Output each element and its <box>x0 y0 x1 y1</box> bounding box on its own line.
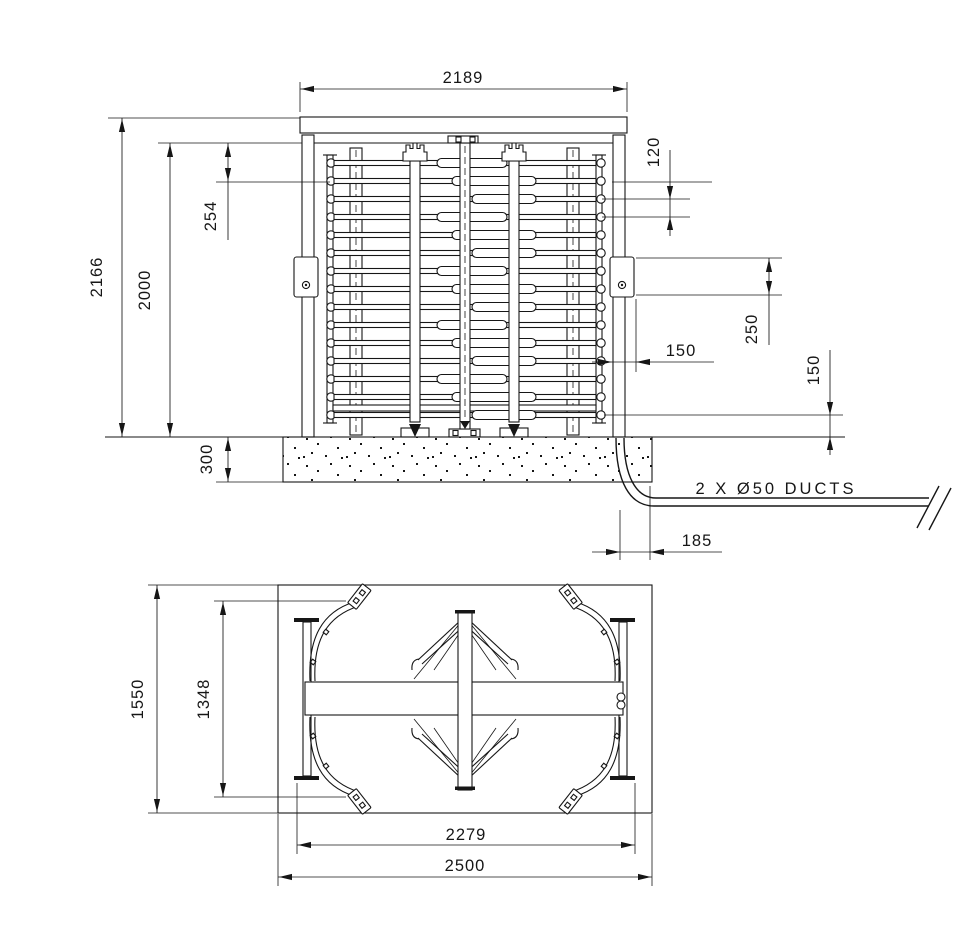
beam-bolt <box>617 693 625 701</box>
dim-reader-box-height-label: 250 <box>743 314 761 345</box>
plan-center-column <box>455 610 475 790</box>
turnstile-technical-drawing-page: 2189 2166 2000 254 300 120 250 150 150 1… <box>0 0 978 941</box>
dim-top-offset-label: 254 <box>202 201 220 232</box>
dim-bottom-bar-height-label: 150 <box>805 355 823 386</box>
dim-overall-height-label: 2166 <box>88 257 106 298</box>
foundation <box>283 437 652 482</box>
pipe-break-mark <box>929 488 951 530</box>
dim-overall-depth-label: 1550 <box>129 679 147 720</box>
plan-view: 1550 1348 2279 2500 <box>129 584 652 886</box>
dim-overall-width-label: 2189 <box>443 69 484 87</box>
dim-duct-offset-label: 185 <box>682 532 713 550</box>
dim-post-spacing-label: 2279 <box>446 826 487 844</box>
front-elevation-view: 2189 2166 2000 254 300 120 250 150 150 1… <box>88 69 951 560</box>
beam-bolt <box>617 701 625 709</box>
turnstile-technical-drawing: 2189 2166 2000 254 300 120 250 150 150 1… <box>0 0 978 941</box>
dim-inner-depth-label: 1348 <box>195 679 213 720</box>
dim-reader-offset-label: 150 <box>666 342 697 360</box>
canopy <box>300 117 627 133</box>
card-reader-right <box>610 257 634 297</box>
duct-note-label: 2 X Ø50 DUCTS <box>696 480 857 498</box>
dim-bar-pitch-label: 120 <box>645 137 663 168</box>
dim-cage-height-label: 2000 <box>136 270 154 311</box>
pipe-break-mark <box>917 486 939 528</box>
card-reader-left <box>294 257 318 297</box>
dim-plan-overall-width-label: 2500 <box>445 857 486 875</box>
dim-foundation-depth-label: 300 <box>198 444 216 475</box>
